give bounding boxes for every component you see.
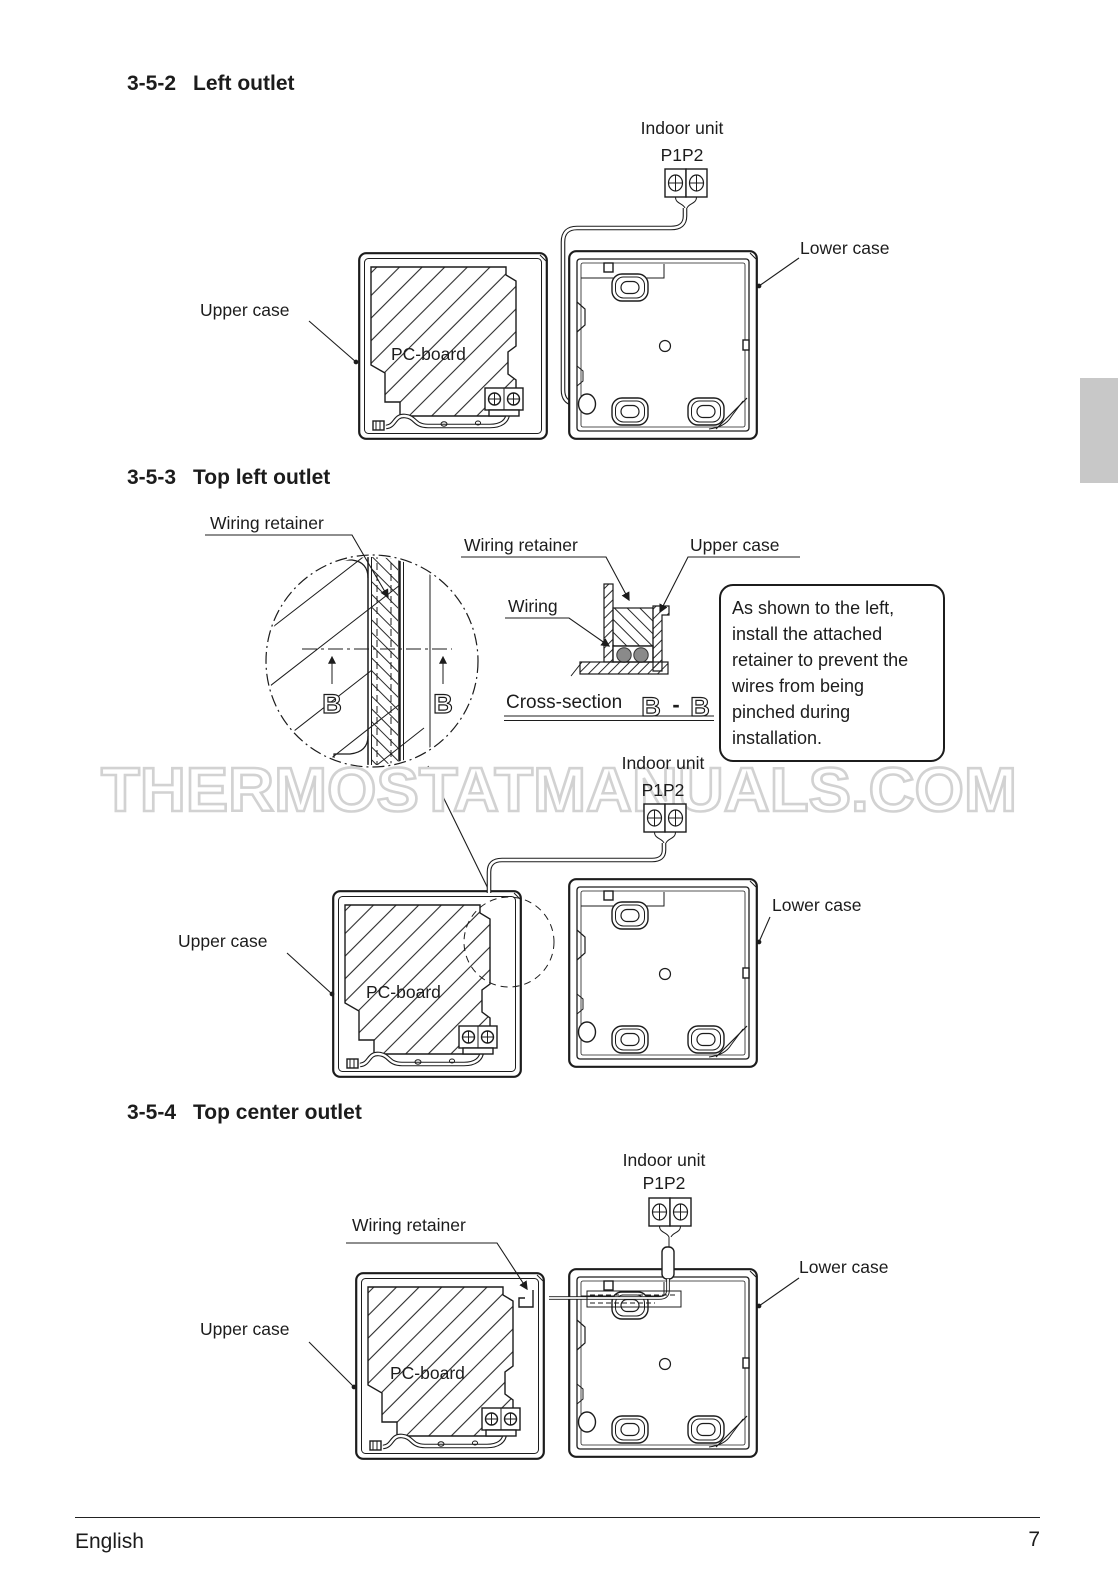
- manual-page: B B B - B: [0, 0, 1118, 1587]
- label-lower-case-1: Lower case: [800, 239, 890, 258]
- section-number: 3-5-3: [127, 466, 176, 489]
- diagram-artwork: B B B - B: [0, 0, 1118, 1587]
- section-title: Top center outlet: [193, 1101, 362, 1124]
- label-indoor-unit-2: Indoor unit: [611, 754, 715, 773]
- label-lower-case-3: Lower case: [799, 1258, 889, 1277]
- section-heading-1: 3-5-2Left outlet: [127, 72, 295, 96]
- section-number: 3-5-4: [127, 1101, 176, 1124]
- cross-section-mark-separator: -: [672, 692, 679, 717]
- diagram-top-left-outlet: [287, 879, 770, 1077]
- diagram-artwork-top: [0, 0, 1118, 1587]
- watermark-text: THERMOSTATMANUALS.COM: [101, 756, 1017, 825]
- label-pc-board-2: PC-board: [366, 983, 441, 1002]
- section-title: Left outlet: [193, 72, 294, 95]
- page-edge-tab: [1080, 378, 1118, 483]
- cross-section-drawing: B - B: [205, 535, 800, 722]
- label-upper-case-section: Upper case: [690, 536, 780, 555]
- label-wiring-retainer-detail: Wiring retainer: [210, 514, 324, 533]
- diagram-left-outlet: [309, 169, 799, 439]
- label-terminals-2: P1P2: [611, 781, 715, 800]
- watermark: THERMOSTATMANUALS.COM: [95, 752, 1023, 828]
- label-upper-case-3: Upper case: [200, 1320, 290, 1339]
- diagram-top-center-outlet: [309, 1198, 799, 1459]
- note-box: As shown to the left, install the attach…: [719, 584, 945, 762]
- label-terminals-1: P1P2: [630, 146, 734, 165]
- label-pc-board-3: PC-board: [390, 1364, 465, 1383]
- label-indoor-unit-1: Indoor unit: [630, 119, 734, 138]
- footer-rule: [75, 1517, 1040, 1518]
- section-number: 3-5-2: [127, 72, 176, 95]
- label-cross-section: Cross-section: [506, 693, 622, 712]
- label-upper-case-1: Upper case: [200, 301, 290, 320]
- footer-language: English: [75, 1530, 144, 1554]
- cross-section-mark-left: B: [641, 692, 661, 722]
- label-wiring-retainer-section: Wiring retainer: [464, 536, 578, 555]
- detail-circle-drawing: B B: [252, 530, 497, 907]
- label-wiring-retainer-3: Wiring retainer: [352, 1216, 466, 1235]
- section-heading-3: 3-5-4Top center outlet: [127, 1101, 362, 1125]
- section-title: Top left outlet: [193, 466, 330, 489]
- detail-section-mark-right: B: [433, 689, 453, 719]
- label-indoor-unit-3: Indoor unit: [612, 1151, 716, 1170]
- label-upper-case-2: Upper case: [178, 932, 268, 951]
- label-lower-case-2: Lower case: [772, 896, 862, 915]
- detail-section-mark-left: B: [322, 689, 342, 719]
- label-terminals-3: P1P2: [612, 1174, 716, 1193]
- label-wiring: Wiring: [508, 597, 558, 616]
- cross-section-mark-right: B: [690, 692, 710, 722]
- footer-page-number: 7: [900, 1528, 1040, 1552]
- section-heading-2: 3-5-3Top left outlet: [127, 466, 330, 490]
- label-pc-board-1: PC-board: [391, 345, 466, 364]
- indoor-unit-terminal-s2: [489, 804, 686, 893]
